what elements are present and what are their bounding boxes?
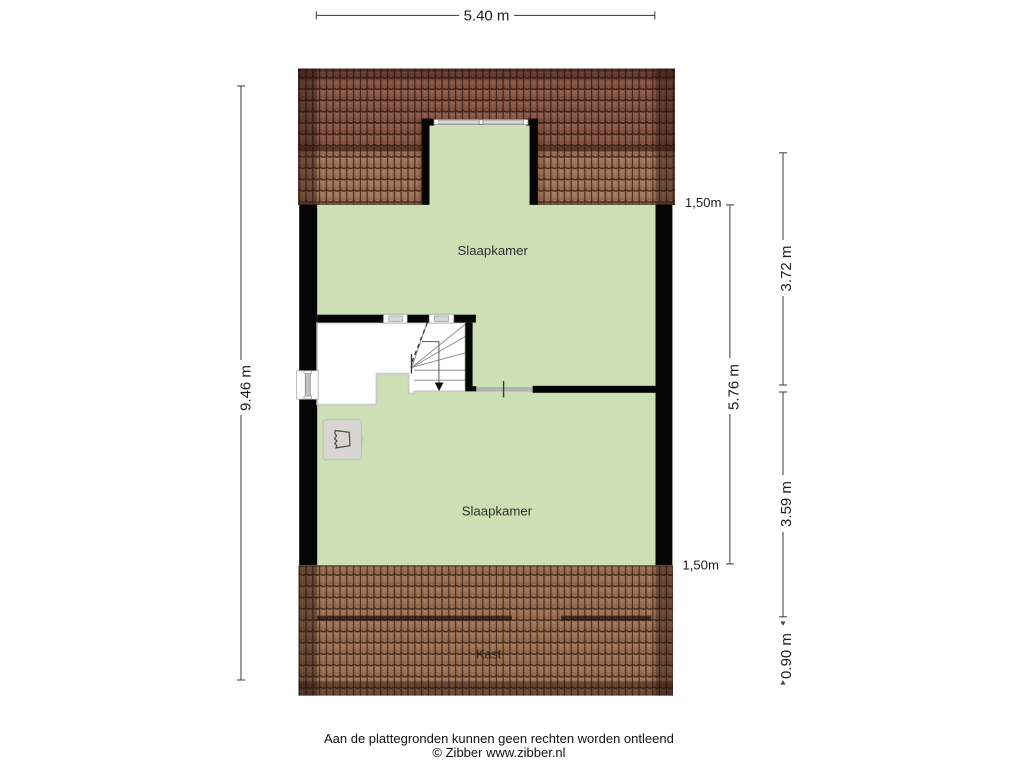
svg-text:Kast: Kast [476, 648, 502, 662]
svg-text:0.90 m: 0.90 m [778, 633, 795, 679]
svg-text:Aan de plattegronden kunnen ge: Aan de plattegronden kunnen geen rechten… [324, 731, 674, 746]
svg-text:3.72 m: 3.72 m [778, 246, 795, 292]
svg-text:Slaapkamer: Slaapkamer [458, 243, 529, 258]
svg-text:9.46 m: 9.46 m [238, 365, 255, 411]
svg-text:1,50m: 1,50m [685, 195, 722, 210]
svg-text:5.40 m: 5.40 m [464, 8, 510, 25]
svg-text:5.76 m: 5.76 m [725, 364, 742, 410]
svg-text:1,50m: 1,50m [682, 558, 719, 573]
svg-text:3.59 m: 3.59 m [778, 481, 795, 527]
svg-text:Slaapkamer: Slaapkamer [462, 503, 533, 518]
svg-text:© Zibber www.zibber.nl: © Zibber www.zibber.nl [432, 745, 565, 760]
